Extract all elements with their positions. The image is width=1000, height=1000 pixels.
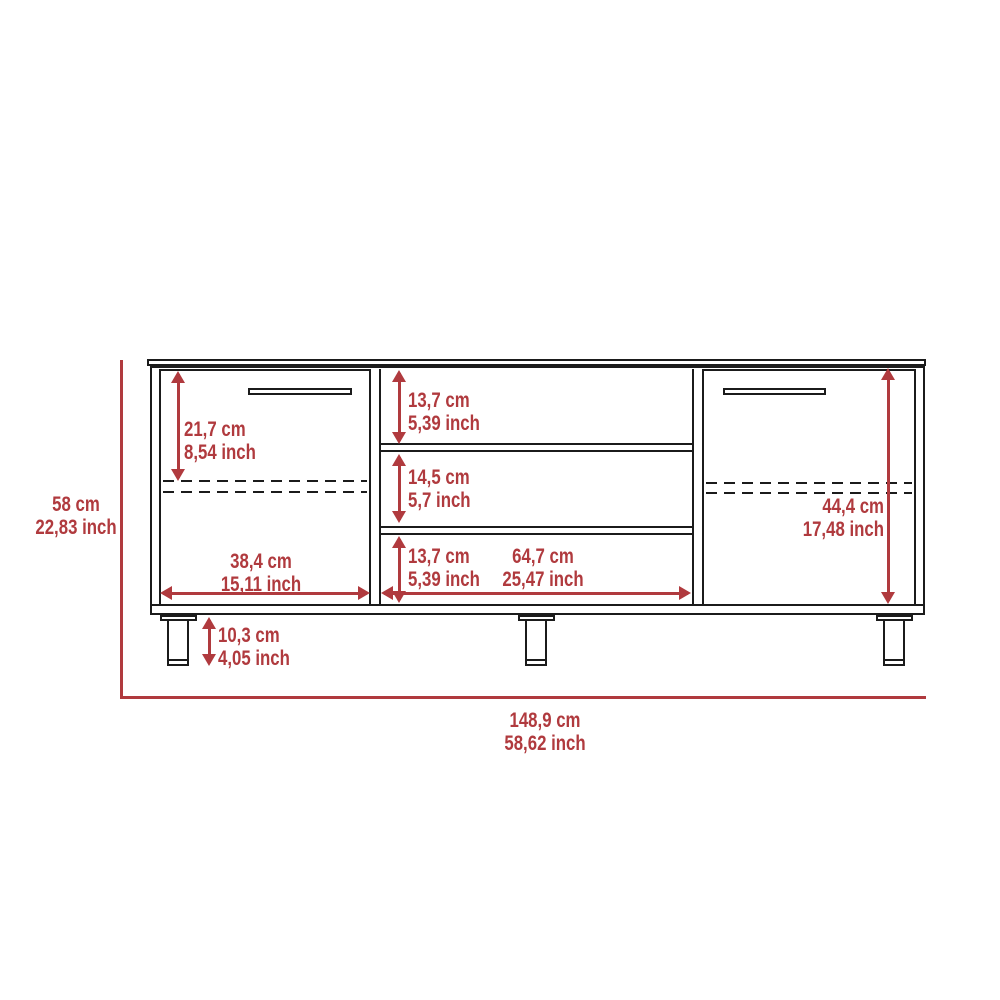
dim-arrow-top-compartment [392, 370, 406, 444]
dim-value-cm: 10,3 cm [218, 624, 290, 647]
dim-value-inch: 5,7 inch [408, 489, 471, 512]
furniture-dimension-diagram: 21,7 cm 8,54 inch 13,7 cm 5,39 inch 14,5… [0, 0, 1000, 1000]
dim-label-left-door-height: 21,7 cm 8,54 inch [184, 418, 256, 464]
overall-width-dimension-line [120, 696, 926, 699]
right-door-handle [723, 388, 826, 395]
dim-arrow-leg-height [202, 617, 216, 666]
dim-value-inch: 15,11 inch [197, 573, 325, 596]
center-divider-right [692, 369, 694, 606]
dim-label-overall-width: 148,9 cm 58,62 inch [481, 709, 609, 755]
dim-value-cm: 58 cm [15, 493, 137, 516]
dim-value-inch: 4,05 inch [218, 647, 290, 670]
dim-value-cm: 148,9 cm [481, 709, 609, 732]
dim-arrow-middle-compartment [392, 454, 406, 523]
dim-value-inch: 5,39 inch [408, 568, 480, 591]
dim-value-cm: 38,4 cm [197, 550, 325, 573]
dim-value-inch: 8,54 inch [184, 441, 256, 464]
dim-arrow-left-door-height [171, 371, 185, 481]
center-leg [525, 619, 547, 666]
dim-value-inch: 22,83 inch [15, 516, 137, 539]
dim-label-left-door-width: 38,4 cm 15,11 inch [197, 550, 325, 596]
dim-value-inch: 58,62 inch [481, 732, 609, 755]
dim-label-middle-compartment: 14,5 cm 5,7 inch [408, 466, 471, 512]
dim-label-bottom-compartment: 13,7 cm 5,39 inch [408, 545, 480, 591]
arrow-down-icon [171, 469, 185, 481]
dim-label-right-door-height: 44,4 cm 17,48 inch [788, 495, 884, 541]
dim-label-top-compartment: 13,7 cm 5,39 inch [408, 389, 480, 435]
arrow-right-icon [358, 586, 370, 600]
arrow-right-icon [679, 586, 691, 600]
dim-value-cm: 21,7 cm [184, 418, 256, 441]
dim-value-inch: 5,39 inch [408, 412, 480, 435]
dim-value-inch: 17,48 inch [788, 518, 884, 541]
arrow-down-icon [392, 511, 406, 523]
arrow-down-icon [881, 592, 895, 604]
left-door-handle [248, 388, 352, 395]
dim-value-cm: 13,7 cm [408, 545, 480, 568]
left-door-dashed-line-upper [163, 480, 367, 482]
left-leg [167, 619, 189, 666]
arrow-down-icon [392, 432, 406, 444]
dim-value-cm: 14,5 cm [408, 466, 471, 489]
center-shelf-upper [381, 443, 692, 452]
center-shelf-lower [381, 526, 692, 535]
left-door-dashed-line-lower [163, 491, 367, 493]
dim-label-overall-height: 58 cm 22,83 inch [15, 493, 137, 539]
center-divider-left [379, 369, 381, 606]
dim-value-cm: 13,7 cm [408, 389, 480, 412]
dim-value-cm: 64,7 cm [479, 545, 607, 568]
right-leg [883, 619, 905, 666]
dim-label-center-section-width: 64,7 cm 25,47 inch [479, 545, 607, 591]
dim-label-leg-height: 10,3 cm 4,05 inch [218, 624, 290, 670]
dim-arrow-right-door-height [881, 368, 895, 604]
dim-value-inch: 25,47 inch [479, 568, 607, 591]
dim-value-cm: 44,4 cm [788, 495, 884, 518]
arrow-down-icon [202, 654, 216, 666]
cabinet-top-panel [147, 359, 926, 366]
